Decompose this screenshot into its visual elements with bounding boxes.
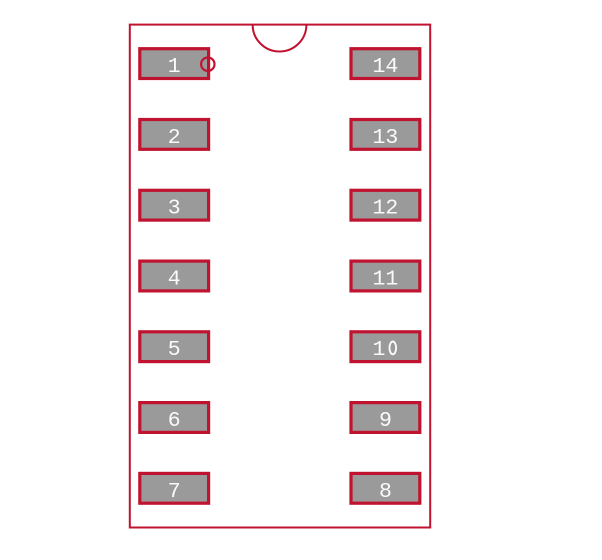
svg-text:3: 3 <box>168 197 181 221</box>
svg-text:2: 2 <box>168 126 181 150</box>
svg-text:4: 4 <box>168 268 181 292</box>
svg-text:9: 9 <box>379 409 392 433</box>
svg-text:8: 8 <box>379 480 392 504</box>
svg-text:14: 14 <box>372 55 398 79</box>
svg-text:1: 1 <box>168 55 181 79</box>
svg-text:7: 7 <box>168 480 181 504</box>
svg-text:13: 13 <box>372 126 398 150</box>
svg-text:6: 6 <box>168 409 181 433</box>
svg-text:12: 12 <box>372 197 398 221</box>
svg-text:11: 11 <box>372 268 398 292</box>
svg-text:5: 5 <box>168 338 181 362</box>
svg-text:1: 1 <box>373 338 386 362</box>
